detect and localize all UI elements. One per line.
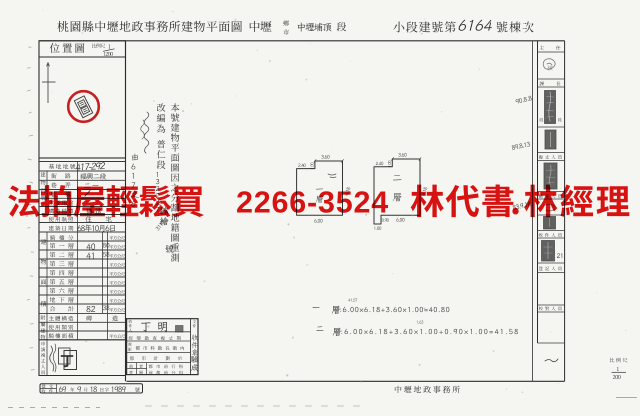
svg-text:2266-3524: 2266-3524 bbox=[236, 186, 389, 220]
